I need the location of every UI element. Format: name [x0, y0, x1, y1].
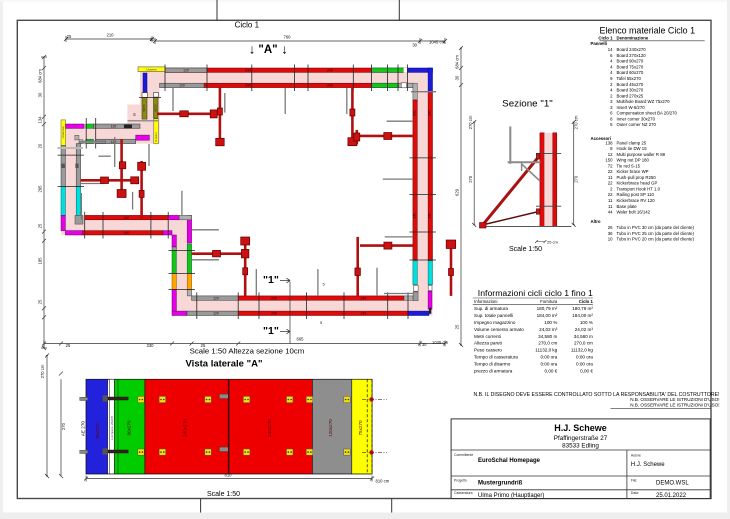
svg-text:24,02 m³: 24,02 m³: [575, 327, 594, 332]
svg-text:11: 11: [608, 175, 613, 180]
svg-text:34,580 m: 34,580 m: [574, 334, 593, 339]
svg-text:EuroSchal Homepage: EuroSchal Homepage: [478, 458, 541, 464]
svg-text:Board 270x25: Board 270x25: [617, 93, 644, 98]
svg-text:Tie rod S-15: Tie rod S-15: [617, 163, 641, 168]
svg-text:100 %: 100 %: [580, 320, 593, 325]
svg-text:36: 36: [608, 231, 613, 236]
svg-text:11: 11: [608, 198, 613, 203]
svg-text:22: 22: [608, 169, 613, 174]
svg-text:240: 240: [124, 231, 130, 235]
svg-text:240: 240: [124, 216, 130, 220]
svg-text:30: 30: [422, 342, 427, 347]
svg-text:72: 72: [608, 163, 613, 168]
svg-text:Board 270x120: Board 270x120: [617, 53, 647, 58]
svg-text:Base plate: Base plate: [617, 204, 638, 209]
svg-text:90x270: 90x270: [127, 420, 132, 436]
svg-text:120: 120: [111, 125, 117, 129]
svg-text:120: 120: [213, 312, 219, 316]
svg-text:Sezione "1": Sezione "1": [502, 99, 553, 109]
svg-text:Board 90x270: Board 90x270: [617, 59, 644, 64]
svg-text:810 cm: 810 cm: [376, 479, 390, 484]
svg-text:Scale 1:50 Altezza sezione 1: Scale 1:50 Altezza sezione 10cm: [190, 347, 305, 356]
svg-text:14: 14: [608, 47, 613, 52]
svg-text:Data:: Data:: [631, 491, 639, 495]
svg-text:240: 240: [413, 213, 417, 219]
svg-text:"1": "1": [263, 325, 279, 337]
svg-text:83533 Edling: 83533 Edling: [562, 443, 599, 450]
svg-text:Sup. di armatura: Sup. di armatura: [474, 306, 508, 311]
svg-text:270 cm: 270 cm: [40, 364, 45, 378]
svg-text:150: 150: [605, 158, 613, 163]
svg-text:Pannelli: Pannelli: [591, 41, 607, 46]
svg-text:"1": "1": [263, 274, 279, 286]
svg-text:240x270: 240x270: [267, 419, 272, 437]
svg-text:Kickerbrace RV 120: Kickerbrace RV 120: [617, 198, 656, 203]
svg-text:665: 665: [297, 337, 305, 342]
svg-text:0:00 ora: 0:00 ora: [576, 362, 593, 367]
svg-text:240: 240: [361, 312, 367, 316]
svg-text:Pfaffingerstraße 27: Pfaffingerstraße 27: [554, 435, 608, 442]
svg-text:WZ75: WZ75: [142, 104, 146, 111]
svg-text:1045 cm: 1045 cm: [429, 40, 446, 45]
svg-text:Elenco materiale Ciclo 1: Elenco materiale Ciclo 1: [600, 26, 696, 36]
svg-text:Board 60x270: Board 60x270: [617, 70, 644, 75]
svg-text:75x270: 75x270: [358, 420, 363, 436]
svg-text:Push-pull prop R250: Push-pull prop R250: [617, 175, 657, 180]
svg-text:184,00 m²: 184,00 m²: [572, 313, 593, 318]
svg-text:25: 25: [66, 343, 71, 348]
svg-text:"A": "A": [258, 44, 277, 56]
svg-text:270 cm: 270 cm: [468, 115, 473, 129]
svg-text:44: 44: [608, 210, 613, 215]
svg-text:Tubo in PVC 30 cm (da parte de: Tubo in PVC 30 cm (da parte del cliente): [617, 225, 695, 230]
svg-text:Hook tie DW 15: Hook tie DW 15: [617, 146, 648, 151]
svg-text:Kicker brace WP: Kicker brace WP: [617, 169, 649, 174]
svg-text:240: 240: [428, 110, 432, 116]
svg-text:Panel clamp 25: Panel clamp 25: [617, 140, 647, 145]
svg-text:240: 240: [428, 213, 432, 219]
svg-text:H.J. Schewe: H.J. Schewe: [554, 423, 607, 433]
svg-text:H.J. Schewe: H.J. Schewe: [631, 462, 665, 468]
svg-text:Tempo di casseratura: Tempo di casseratura: [474, 355, 518, 360]
svg-text:138: 138: [605, 140, 613, 145]
svg-text:240: 240: [413, 110, 417, 116]
svg-text:25: 25: [38, 299, 43, 304]
svg-text:Mustergrundriß: Mustergrundriß: [478, 480, 523, 486]
svg-text:25: 25: [67, 34, 72, 39]
svg-text:240x270: 240x270: [183, 419, 188, 437]
svg-text:Board 45x270: Board 45x270: [617, 82, 644, 87]
svg-text:Autore: Autore: [631, 454, 641, 458]
svg-text:240: 240: [271, 312, 277, 316]
svg-text:Altro: Altro: [591, 219, 601, 224]
svg-text:22: 22: [608, 192, 613, 197]
svg-text:DEMO.WSL: DEMO.WSL: [656, 480, 689, 486]
svg-text:0,00 €: 0,00 €: [580, 369, 593, 374]
svg-text:Vista laterale "A": Vista laterale "A": [186, 359, 263, 370]
svg-text:Board 240x270: Board 240x270: [617, 47, 647, 52]
svg-text:240: 240: [245, 84, 251, 88]
svg-text:Scale 1:50: Scale 1:50: [207, 491, 240, 498]
svg-text:184,00 m²: 184,00 m²: [537, 313, 558, 318]
svg-text:11: 11: [608, 204, 613, 209]
svg-text:0:00 ora: 0:00 ora: [540, 355, 557, 360]
svg-text:25.01.2022: 25.01.2022: [656, 493, 687, 499]
svg-text:0:00 ora: 0:00 ora: [576, 355, 593, 360]
svg-text:Denominazione: Denominazione: [617, 35, 649, 40]
svg-text:180,79 m²: 180,79 m²: [537, 306, 558, 311]
svg-text:Ulma Primo (Hauptlager): Ulma Primo (Hauptlager): [478, 493, 544, 499]
svg-text:684 cm: 684 cm: [38, 69, 43, 83]
svg-text:Casseratura: Casseratura: [454, 491, 473, 495]
svg-text:Informazioni cicli ciclo 1 fi: Informazioni cicli ciclo 1 fino 1: [478, 289, 594, 298]
svg-text:prezzo di armatura: prezzo di armatura: [474, 369, 513, 374]
svg-text:270 cm: 270 cm: [574, 115, 579, 129]
svg-text:S: S: [133, 112, 136, 117]
svg-text:120: 120: [183, 68, 189, 72]
svg-text:AE 270: AE 270: [81, 421, 86, 437]
svg-text:120: 120: [179, 84, 185, 88]
svg-text:24,02 m³: 24,02 m³: [539, 327, 558, 332]
svg-text:Committente: Committente: [454, 453, 473, 457]
svg-text:240: 240: [361, 296, 367, 300]
svg-text:Altezza pareti: Altezza pareti: [474, 341, 502, 346]
svg-text:270,0 cm: 270,0 cm: [538, 341, 557, 346]
svg-text:100 %: 100 %: [544, 320, 557, 325]
svg-text:Tempo di disarmo: Tempo di disarmo: [474, 362, 511, 367]
svg-text:Metri correnti: Metri correnti: [474, 334, 501, 339]
svg-text:Kickerbrace head GP: Kickerbrace head GP: [617, 181, 658, 186]
svg-text:34,580 m: 34,580 m: [538, 334, 557, 339]
svg-text:Multihole Board WZ 75x270: Multihole Board WZ 75x270: [617, 99, 671, 104]
svg-text:240: 240: [271, 296, 277, 300]
svg-text:WZ75: WZ75: [153, 104, 157, 111]
svg-text:Peso cassero: Peso cassero: [474, 348, 502, 353]
svg-text:240: 240: [327, 84, 333, 88]
svg-text:240: 240: [327, 68, 333, 72]
svg-text:L.compens. 20x270: L.compens. 20x270: [110, 415, 114, 440]
svg-text:Ciclo 1: Ciclo 1: [235, 21, 260, 30]
svg-text:Progetto: Progetto: [454, 479, 467, 483]
svg-text:Tubo in PVC 20 cm (da parte de: Tubo in PVC 20 cm (da parte del cliente): [617, 237, 695, 242]
svg-text:0,00 €: 0,00 €: [545, 369, 558, 374]
svg-text:25: 25: [38, 223, 43, 228]
svg-text:1045 cm: 1045 cm: [432, 340, 449, 345]
svg-text:760: 760: [284, 35, 292, 40]
svg-text:20: 20: [38, 143, 43, 148]
svg-text:180,79 m²: 180,79 m²: [572, 306, 593, 311]
svg-text:55x270: 55x270: [95, 423, 100, 439]
svg-text:↓: ↓: [249, 42, 256, 57]
svg-text:20: 20: [150, 37, 155, 42]
svg-text:Tafel 55x270: Tafel 55x270: [617, 76, 642, 81]
svg-text:Multi purpose waller R 88: Multi purpose waller R 88: [617, 152, 666, 157]
svg-text:Ciclo 1: Ciclo 1: [579, 299, 594, 304]
svg-text:Wing nut DP 180: Wing nut DP 180: [617, 158, 650, 163]
svg-text:Board 75x270: Board 75x270: [617, 65, 644, 70]
svg-text:330: 330: [147, 343, 155, 348]
svg-text:120x270: 120x270: [328, 419, 333, 437]
svg-text:270,0 cm: 270,0 cm: [574, 341, 593, 346]
svg-text:11132,0 kg: 11132,0 kg: [535, 348, 557, 353]
svg-text:134: 134: [38, 116, 43, 124]
svg-text:Univers: Univers: [146, 67, 157, 71]
svg-text:12: 12: [608, 152, 613, 157]
svg-text:Railing post SP 110: Railing post SP 110: [617, 192, 655, 197]
svg-text:30: 30: [454, 75, 459, 80]
svg-text:684 cm: 684 cm: [454, 55, 459, 69]
svg-text:Impegno magazzino: Impegno magazzino: [474, 320, 516, 325]
svg-text:↓: ↓: [281, 42, 288, 57]
svg-text:Board 30x270: Board 30x270: [617, 88, 644, 93]
svg-text:Compensation sheet BA 20/270: Compensation sheet BA 20/270: [617, 111, 678, 116]
svg-text:11132,0 kg: 11132,0 kg: [571, 348, 593, 353]
svg-text:Waler bolt 16/142: Waler bolt 16/142: [617, 210, 651, 215]
svg-text:Ciclo 1: Ciclo 1: [598, 35, 613, 40]
svg-text:Universal: Universal: [61, 126, 65, 138]
svg-text:Fornitura: Fornitura: [540, 299, 558, 304]
svg-text:120: 120: [111, 140, 117, 144]
svg-text:Outer corner NZ 270: Outer corner NZ 270: [617, 122, 657, 127]
svg-text:10: 10: [608, 237, 613, 242]
svg-text:Informazioni: Informazioni: [474, 299, 497, 304]
svg-text:240: 240: [245, 68, 251, 72]
svg-text:Scale 1:50: Scale 1:50: [509, 246, 542, 253]
svg-text:25 cm: 25 cm: [547, 239, 559, 244]
svg-text:295: 295: [38, 185, 43, 193]
svg-text:25: 25: [454, 324, 459, 329]
svg-text:270: 270: [574, 175, 579, 183]
svg-text:185: 185: [38, 257, 43, 265]
svg-text:Transport Hook HT 1.0: Transport Hook HT 1.0: [617, 187, 661, 192]
svg-text:Volume cemento armato: Volume cemento armato: [474, 327, 524, 332]
svg-text:30: 30: [38, 92, 43, 97]
svg-text:Tubo in PVC 25 cm (da parte de: Tubo in PVC 25 cm (da parte del cliente): [617, 231, 695, 236]
svg-text:270: 270: [61, 422, 66, 430]
svg-text:26: 26: [608, 225, 613, 230]
svg-text:629: 629: [454, 188, 459, 196]
svg-text:270: 270: [468, 175, 473, 183]
svg-text:Sup. totale pannelli: Sup. totale pannelli: [474, 313, 513, 318]
svg-text:120: 120: [213, 296, 219, 300]
svg-text:File:: File:: [631, 479, 637, 483]
svg-text:210: 210: [107, 33, 115, 38]
svg-text:0:00 ora: 0:00 ora: [540, 362, 557, 367]
svg-text:N.B. OSSERVARE LE ISTRUZIONI D: N.B. OSSERVARE LE ISTRUZIONI D'USO!: [630, 402, 719, 407]
svg-text:Insert W-6/270: Insert W-6/270: [617, 105, 646, 110]
svg-text:22: 22: [608, 181, 613, 186]
svg-text:Univers: Univers: [154, 132, 158, 142]
svg-text:30: 30: [412, 43, 417, 48]
svg-text:810: 810: [225, 473, 233, 478]
svg-text:Inner corner 30x270: Inner corner 30x270: [617, 116, 656, 121]
